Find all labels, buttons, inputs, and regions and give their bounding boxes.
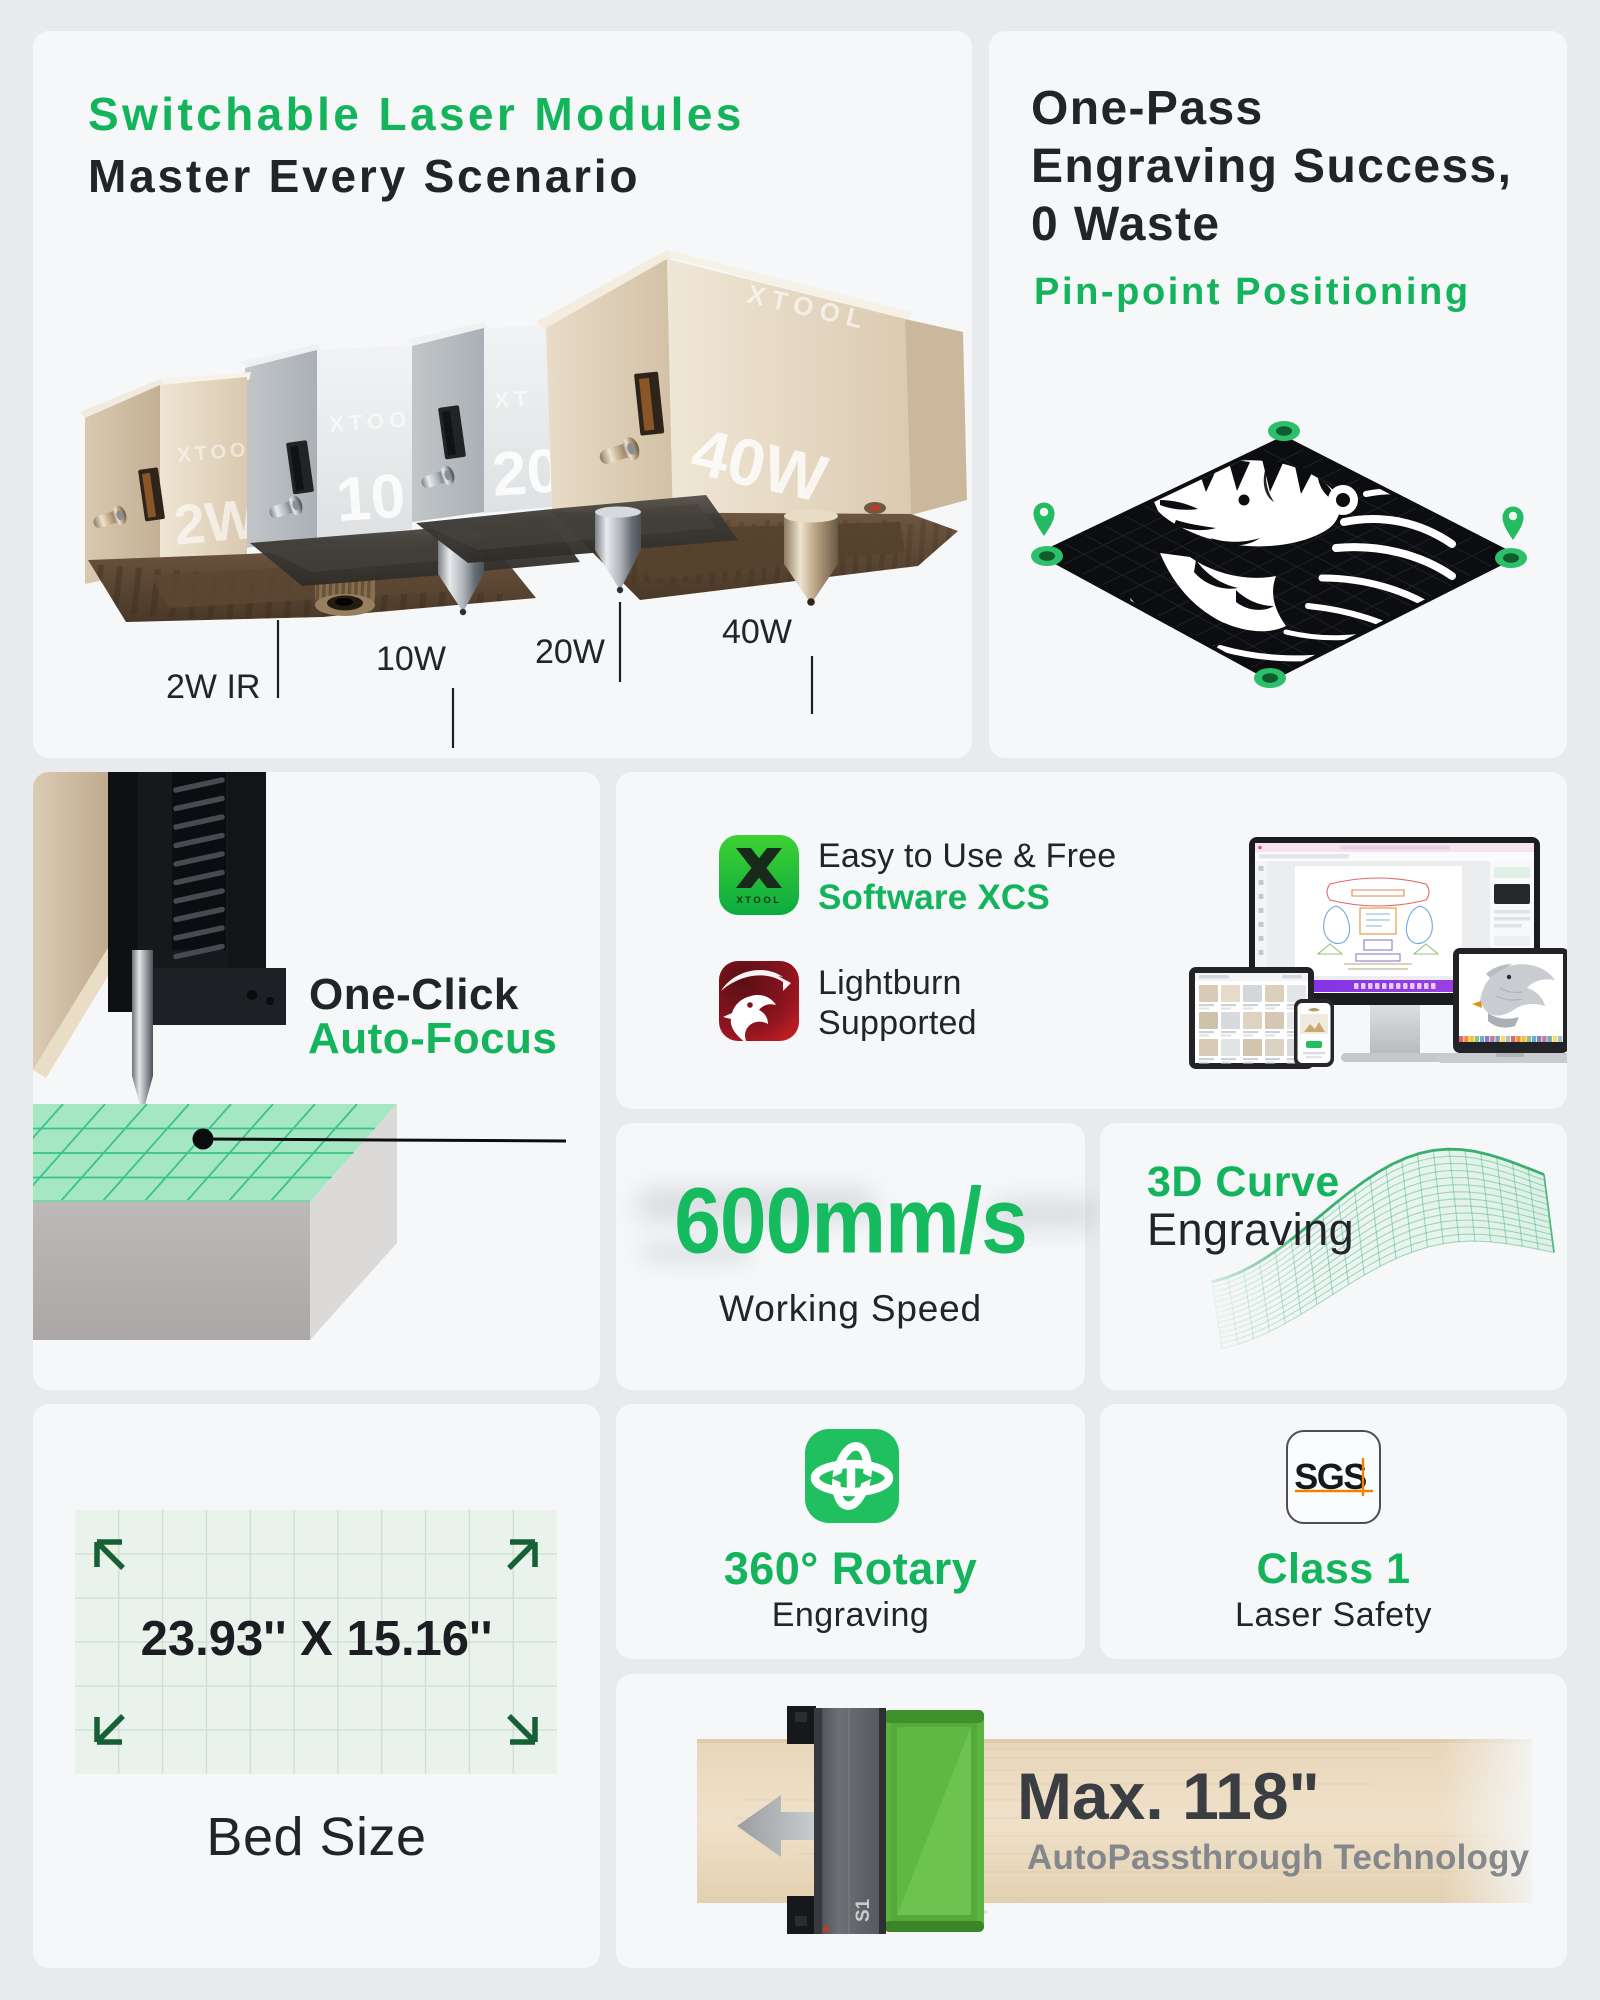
svg-text:S1: S1 — [853, 1898, 874, 1922]
svg-text:XT: XT — [494, 385, 534, 413]
svg-text:10: 10 — [334, 461, 408, 535]
svg-text:XTOOL: XTOOL — [736, 895, 781, 906]
